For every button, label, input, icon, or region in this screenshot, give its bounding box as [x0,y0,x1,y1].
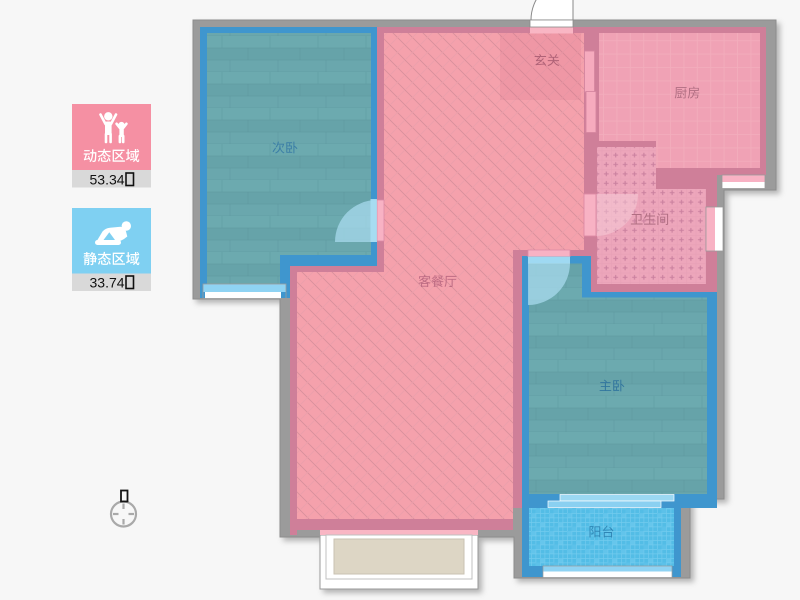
svg-text:33.74: 33.74 [90,275,125,291]
svg-text:53.34: 53.34 [90,172,125,188]
